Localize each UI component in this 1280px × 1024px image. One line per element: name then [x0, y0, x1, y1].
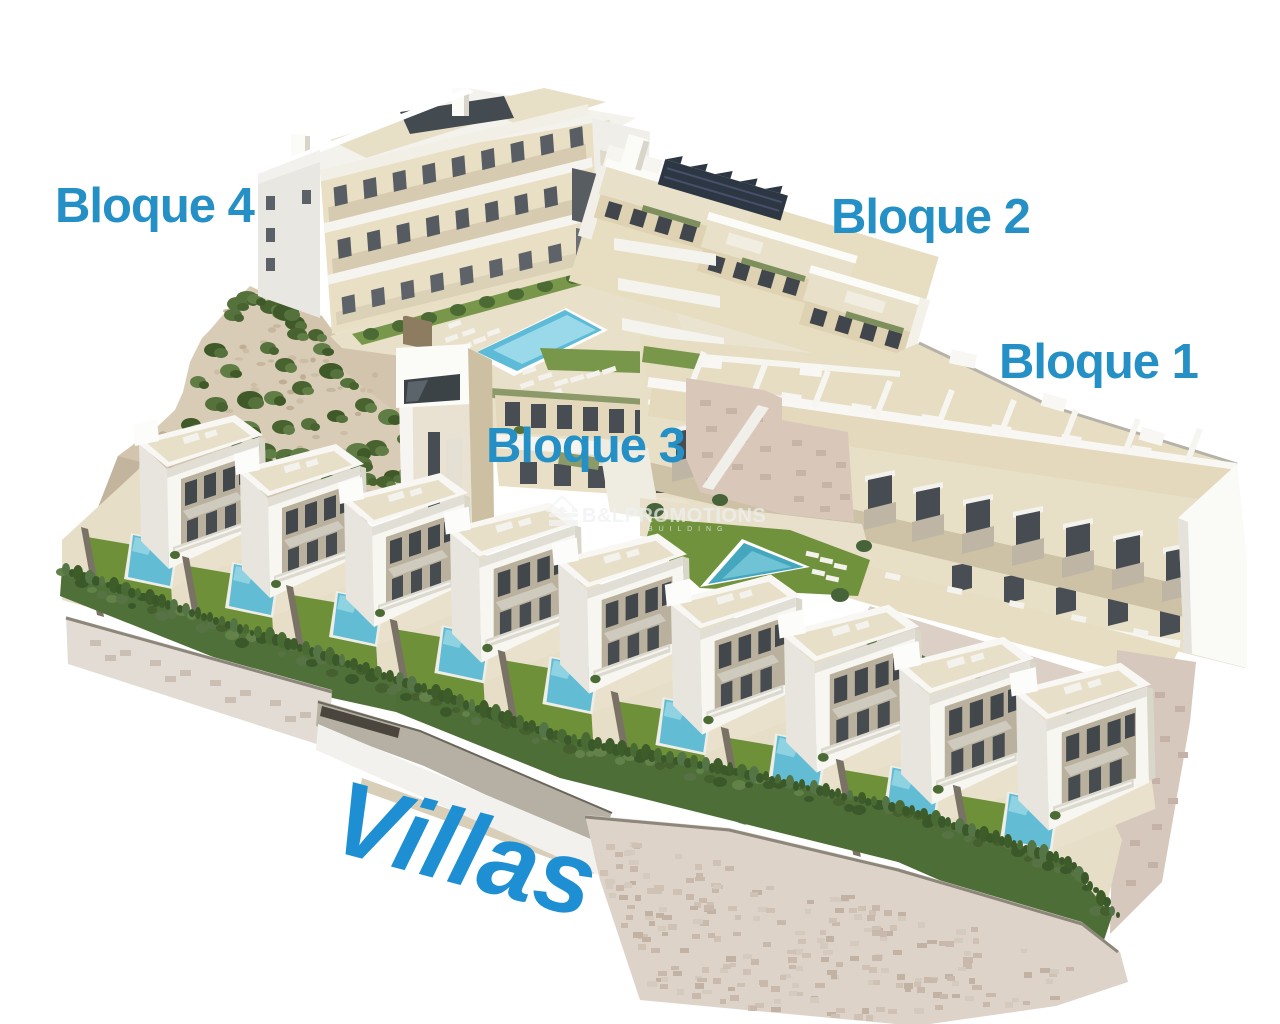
svg-text:Bloque 2: Bloque 2	[831, 190, 1030, 244]
svg-text:Bloque 1: Bloque 1	[999, 335, 1198, 389]
svg-text:B U I L D I N G: B U I L D I N G	[648, 526, 724, 533]
svg-text:Bloque 3: Bloque 3	[486, 419, 685, 473]
svg-text:Bloque 4: Bloque 4	[55, 179, 255, 233]
svg-text:B&LPROMOTIONS: B&LPROMOTIONS	[582, 505, 766, 527]
